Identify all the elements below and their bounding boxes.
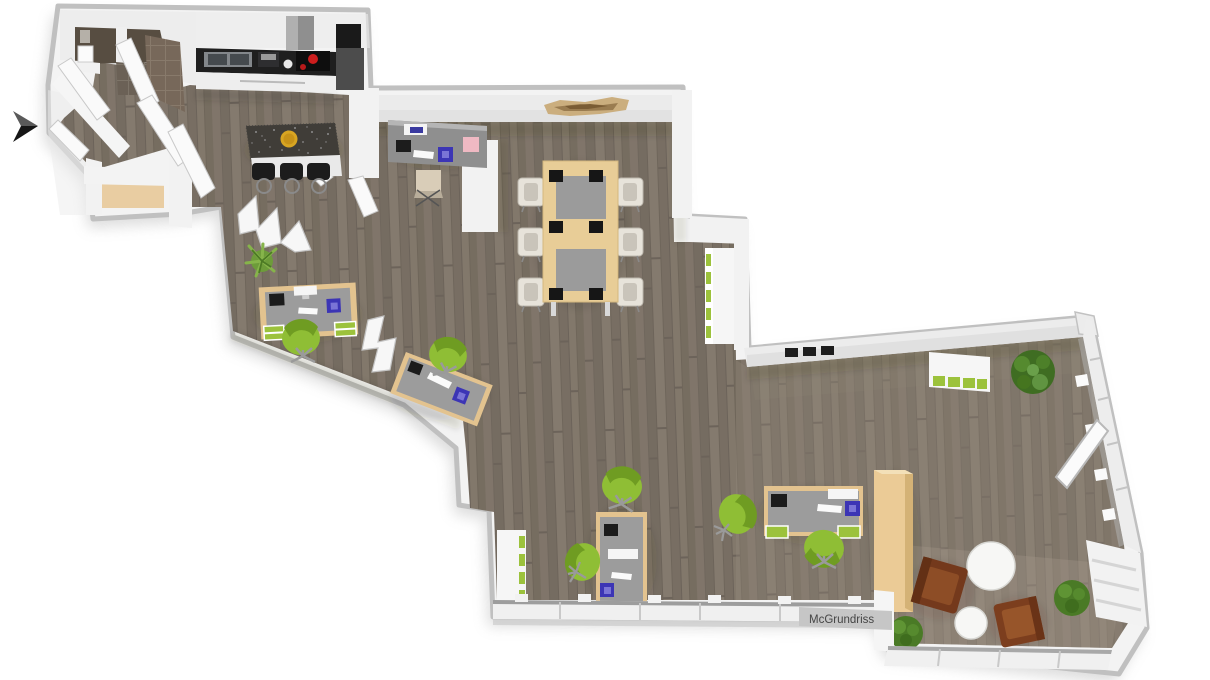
svg-text:McGrundriss: McGrundriss (809, 614, 874, 626)
